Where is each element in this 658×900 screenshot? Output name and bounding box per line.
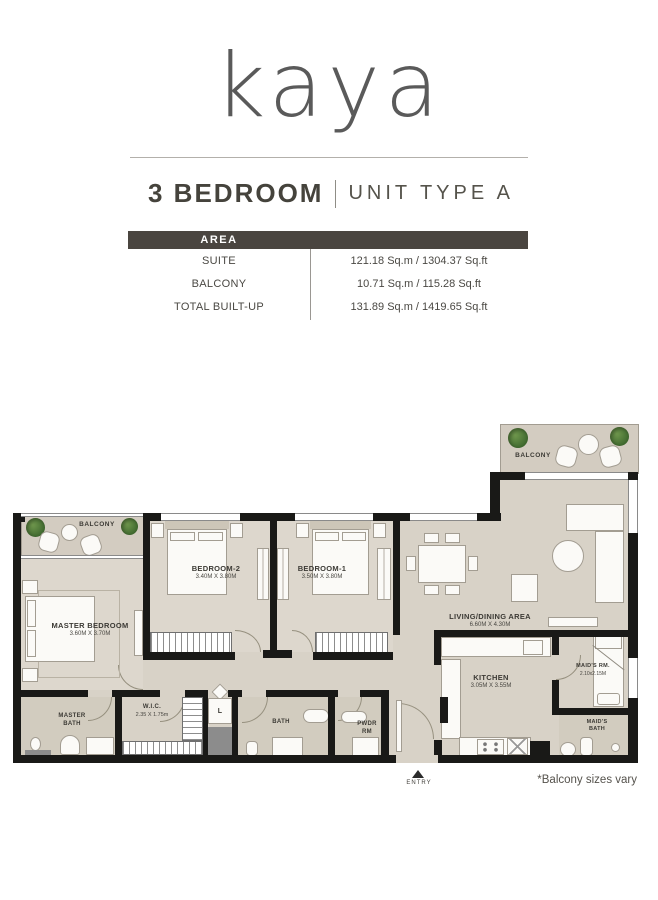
wardrobe (315, 632, 388, 653)
pillow (595, 636, 622, 649)
chair (406, 556, 416, 571)
maids-rm-dims: 2.10x2.15M (563, 671, 623, 677)
pillow (27, 630, 36, 657)
maids-rm-label: MAID'S RM. (563, 663, 623, 670)
chair (424, 533, 439, 543)
wall (228, 690, 242, 697)
toilet (580, 737, 593, 756)
kitchen-dims: 3.05M X 3.55M (441, 683, 541, 690)
wall (13, 513, 21, 763)
bathtub (303, 709, 329, 723)
chair (445, 533, 460, 543)
headboard (165, 521, 229, 529)
living-dining-dims: 6.60M X 4.30M (435, 622, 545, 629)
window (628, 480, 638, 533)
pillow (27, 600, 36, 627)
wall (440, 697, 448, 723)
coffee-table (552, 540, 584, 572)
sofa-section (595, 531, 624, 603)
wall (628, 472, 638, 480)
sliding-door (525, 472, 628, 480)
entry-door-leaf (396, 700, 402, 752)
wall (270, 521, 277, 652)
stove (477, 739, 504, 755)
wall (143, 652, 235, 660)
wall (232, 697, 238, 755)
wall (203, 697, 208, 755)
entry-arrow-icon (412, 770, 424, 778)
wall (21, 690, 88, 697)
nightstand (230, 523, 243, 538)
master-bath-label: MASTER (47, 713, 97, 721)
wardrobe (150, 632, 232, 653)
laundry-closet: L (208, 698, 232, 724)
wall (266, 690, 338, 697)
kitchen-label: KITCHEN (441, 673, 541, 682)
chair (424, 585, 439, 595)
bed-footboard (597, 693, 620, 705)
wic-rail (182, 697, 203, 741)
wall (552, 708, 628, 715)
nightstand (373, 523, 386, 538)
wall (552, 637, 559, 655)
plant (508, 428, 528, 448)
wall (438, 755, 638, 763)
island-sink (523, 640, 543, 655)
laundry-label: L (209, 699, 231, 725)
pillow (315, 532, 339, 541)
wall (434, 630, 552, 637)
bedroom2-dims: 3.40M X 3.80M (166, 574, 266, 581)
closet (377, 548, 391, 600)
balcony-label: BALCONY (67, 521, 127, 529)
window (295, 513, 373, 521)
wall (393, 521, 400, 635)
toilet (60, 735, 80, 755)
master-bedroom-label: MASTER BEDROOM (40, 621, 140, 630)
bedroom1-dims: 3.50M X 3.80M (272, 574, 372, 581)
shaft (208, 727, 232, 755)
wall (240, 513, 295, 521)
master-bath-label: BATH (47, 721, 97, 729)
wall (373, 513, 410, 521)
sliding-door (21, 555, 143, 559)
entry-label: ENTRY (397, 780, 441, 788)
vanity (272, 737, 303, 756)
wic-label: W.I.C. (122, 704, 182, 712)
chair (468, 556, 478, 571)
pillow (170, 532, 195, 541)
maids-bath-label: BATH (572, 726, 622, 733)
brochure-page: kaya 3 BEDROOM UNIT TYPE A AREA SUITE 12… (0, 0, 658, 900)
floorplan: L (0, 0, 658, 900)
balcony-label: BALCONY (503, 452, 563, 460)
wall (434, 740, 442, 755)
sofa-section (566, 504, 624, 531)
plumbing-chase (530, 741, 550, 755)
wall (628, 698, 638, 763)
wall (263, 650, 292, 658)
wic-dims: 2.35 X 1.75m (122, 712, 182, 719)
wall (115, 697, 122, 755)
wall (313, 652, 393, 660)
armchair (511, 574, 538, 602)
toilet (246, 741, 258, 756)
wall (628, 533, 638, 658)
wall (143, 513, 161, 521)
wall (112, 690, 160, 697)
wall (143, 521, 150, 660)
window (161, 513, 240, 521)
shower (86, 737, 114, 755)
pwdr-label: RM (342, 729, 392, 737)
headboard (310, 521, 371, 529)
living-dining-label: LIVING/DINING AREA (435, 612, 545, 621)
wall (552, 630, 638, 637)
chair (445, 585, 460, 595)
wall (185, 690, 208, 697)
pillow (342, 532, 366, 541)
nightstand (151, 523, 164, 538)
tv-console (548, 617, 598, 627)
kitchen-sink (507, 738, 528, 755)
wic-rail (122, 741, 203, 755)
pwdr-label: PWDR (342, 721, 392, 729)
nightstand (296, 523, 309, 538)
bedroom2-label: BEDROOM-2 (166, 564, 266, 573)
nightstand (22, 668, 38, 682)
wall (500, 472, 525, 480)
vanity (352, 737, 379, 756)
window (410, 513, 477, 521)
dining-table (418, 545, 466, 583)
balcony-table (578, 434, 599, 455)
maids-bath-label: MAID'S (572, 719, 622, 726)
wall (360, 690, 389, 697)
wall (434, 637, 441, 665)
wall (328, 697, 335, 755)
wall (490, 472, 500, 521)
balcony-note: *Balcony sizes vary (497, 774, 637, 786)
bath-label: BATH (256, 719, 306, 727)
master-bedroom-dims: 3.60M X 3.70M (40, 631, 140, 638)
pillow (198, 532, 223, 541)
balcony-railing (21, 513, 143, 517)
window (628, 658, 638, 698)
bedroom1-label: BEDROOM-1 (272, 564, 372, 573)
wall (13, 755, 396, 763)
nightstand (22, 580, 38, 594)
plant (610, 427, 629, 446)
pedestal-sink (30, 737, 41, 751)
shower-drain (611, 743, 620, 752)
